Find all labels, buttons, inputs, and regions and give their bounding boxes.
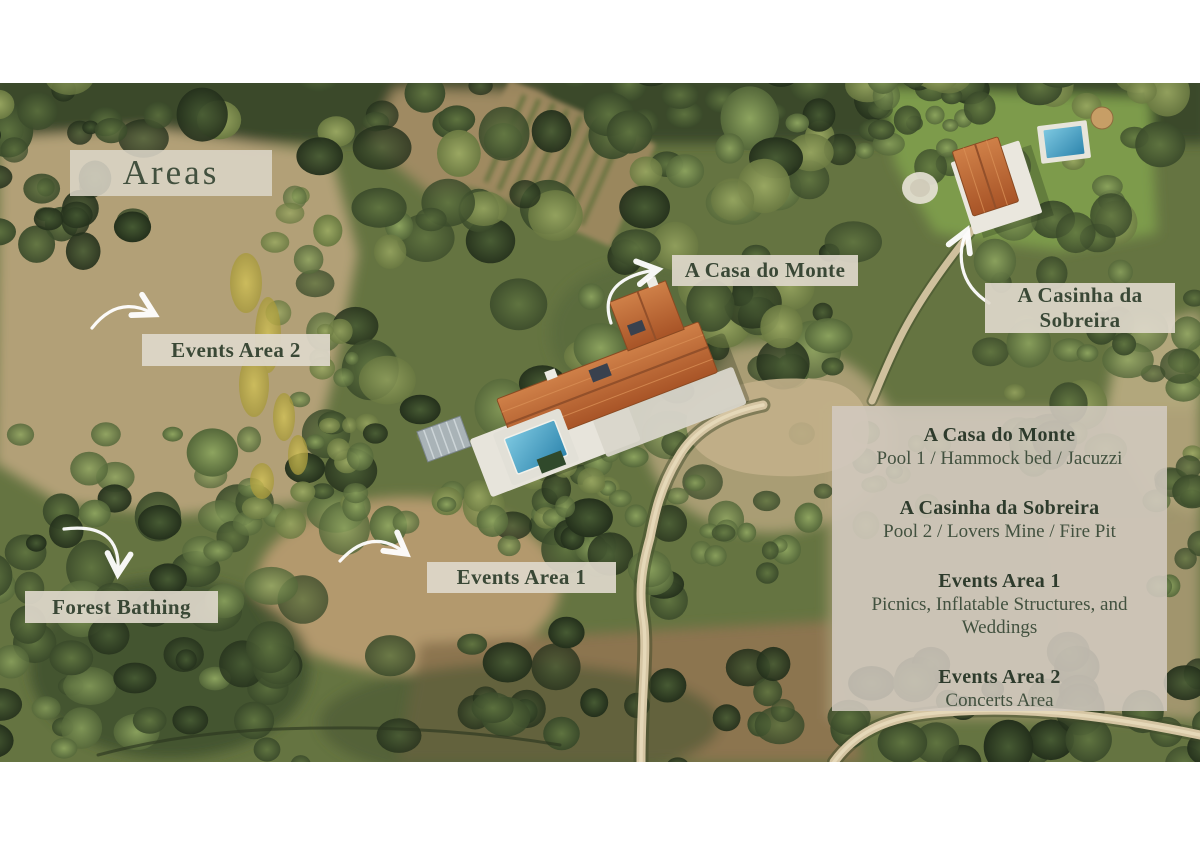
- legend-description: Picnics, Inflatable Structures, and Wedd…: [848, 593, 1151, 639]
- pool-2: [1037, 120, 1091, 164]
- map-label-events-area-2: Events Area 2: [142, 334, 330, 366]
- umbrella: [1091, 107, 1113, 129]
- map-label-text: Events Area 1: [457, 565, 587, 590]
- legend-description: Pool 2 / Lovers Mine / Fire Pit: [848, 520, 1151, 543]
- map-label-text: A Casa do Monte: [685, 258, 846, 283]
- legend-heading: A Casinha da Sobreira: [848, 497, 1151, 520]
- map-label-forest-bathing: Forest Bathing: [25, 591, 218, 623]
- legend-description: Concerts Area: [848, 689, 1151, 711]
- map-label-events-area-1: Events Area 1: [427, 562, 616, 593]
- page-title: Areas: [70, 150, 272, 196]
- legend-description: Pool 1 / Hammock bed / Jacuzzi: [848, 447, 1151, 470]
- round-terrace-inner: [910, 179, 930, 197]
- map-label-text: Forest Bathing: [52, 595, 191, 620]
- page-title-text: Areas: [123, 153, 220, 193]
- legend-panel: A Casa do Monte Pool 1 / Hammock bed / J…: [832, 406, 1167, 711]
- map-label-text: Events Area 2: [171, 338, 301, 363]
- legend-heading: A Casa do Monte: [848, 424, 1151, 447]
- legend-heading: Events Area 2: [848, 666, 1151, 689]
- legend-heading: Events Area 1: [848, 570, 1151, 593]
- legend-section-events-area-2: Events Area 2 Concerts Area: [848, 666, 1151, 711]
- map-label-casinha-da-sobreira: A Casinha da Sobreira: [985, 283, 1175, 333]
- map-label-text: A Casinha da Sobreira: [1017, 283, 1142, 333]
- legend-section-casa-do-monte: A Casa do Monte Pool 1 / Hammock bed / J…: [848, 424, 1151, 470]
- legend-section-events-area-1: Events Area 1 Picnics, Inflatable Struct…: [848, 570, 1151, 639]
- legend-section-casinha: A Casinha da Sobreira Pool 2 / Lovers Mi…: [848, 497, 1151, 543]
- map-label-casa-do-monte: A Casa do Monte: [672, 255, 858, 286]
- property-areas-slide: Areas Events Area 2 A Casa do Monte A Ca…: [0, 0, 1200, 848]
